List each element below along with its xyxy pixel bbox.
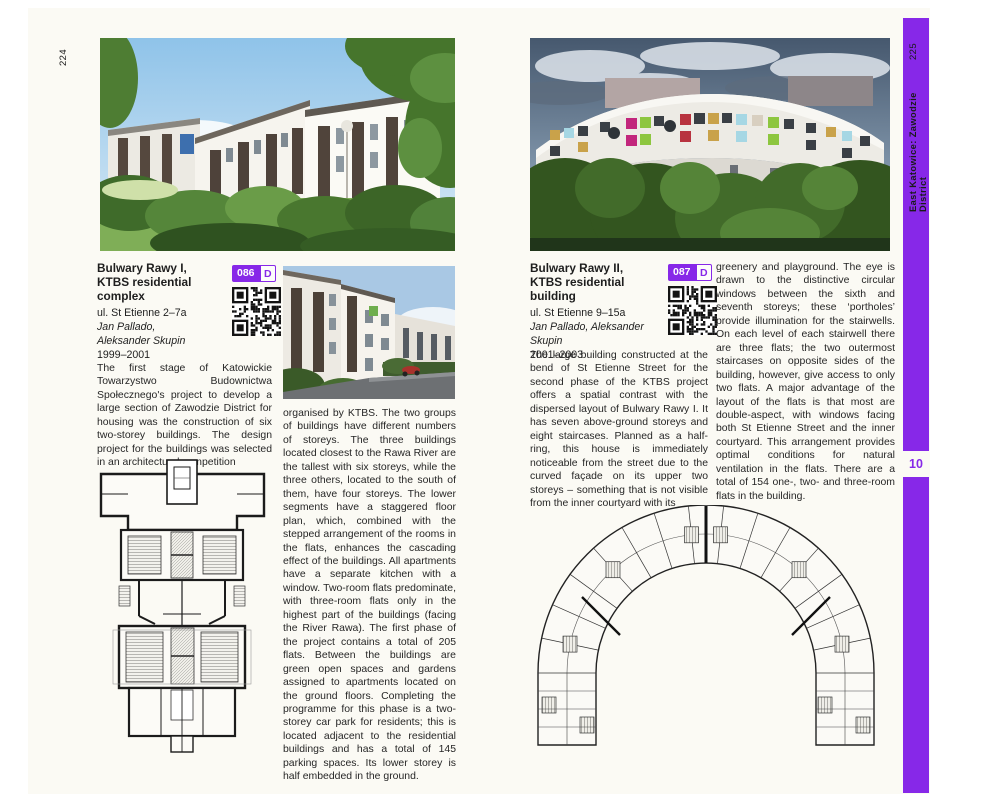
photo-bulwary-rawy-2 (530, 38, 890, 251)
badge-number: 086 (232, 265, 260, 282)
photo-bulwary-rawy-1-graphic (100, 38, 455, 251)
entry-title-line2: KTBS residential building (530, 275, 668, 303)
photo-street-view-graphic (283, 266, 455, 399)
photo-bulwary-rawy-2-graphic (530, 38, 890, 251)
entry-architect-line2: Aleksander Skupin (97, 334, 232, 348)
badge-number: 087 (668, 264, 696, 281)
qr-code-icon-left (232, 287, 281, 336)
chapter-number: 10 (901, 457, 931, 471)
photo-bulwary-rawy-1 (100, 38, 455, 251)
entry-years: 1999–2001 (97, 348, 232, 362)
floorplan-bulwary-rawy-1 (95, 458, 270, 763)
entry-architects: Jan Pallado, Aleksander Skupin (530, 320, 668, 348)
entry-badge-087: 087 D (668, 264, 712, 281)
paragraph-right-col2: greenery and playground. The eye is draw… (716, 261, 895, 503)
badge-letter: D (696, 264, 713, 281)
floorplan-bulwary-rawy-2 (520, 505, 892, 750)
entry-badge-086: 086 D (232, 265, 276, 282)
floorplan-2-graphic (520, 505, 892, 750)
side-tab-lower (903, 477, 929, 793)
entry-address: ul. St Etienne 9–15a (530, 306, 668, 320)
paragraph-right-col1: The large building constructed at the be… (530, 349, 708, 510)
entry-title-line2: KTBS residential complex (97, 275, 232, 303)
paragraph-left-col2: organised by KTBS. The two groups of bui… (283, 407, 456, 784)
qr-code-icon-right (668, 286, 717, 335)
entry-title-line1: Bulwary Rawy II, (530, 261, 668, 275)
page-number-right: 225 (908, 26, 919, 60)
entry-architect-line1: Jan Pallado, (97, 320, 232, 334)
paragraph-left-col1: The first stage of Katowickie Towarzystw… (97, 362, 272, 470)
page-edge-margin (930, 0, 1000, 800)
side-tab-label: East Katowice: Zawodzie District (908, 62, 928, 212)
entry-header-left: Bulwary Rawy I, KTBS residential complex… (97, 261, 232, 362)
floorplan-1-graphic (95, 458, 270, 763)
entry-header-right: Bulwary Rawy II, KTBS residential buildi… (530, 261, 668, 362)
book-spread: 224 (0, 0, 1000, 800)
badge-letter: D (260, 265, 277, 282)
page-number-left: 224 (58, 26, 69, 66)
entry-address: ul. St Etienne 2–7a (97, 306, 232, 320)
entry-title-line1: Bulwary Rawy I, (97, 261, 232, 275)
photo-street-view (283, 266, 455, 399)
